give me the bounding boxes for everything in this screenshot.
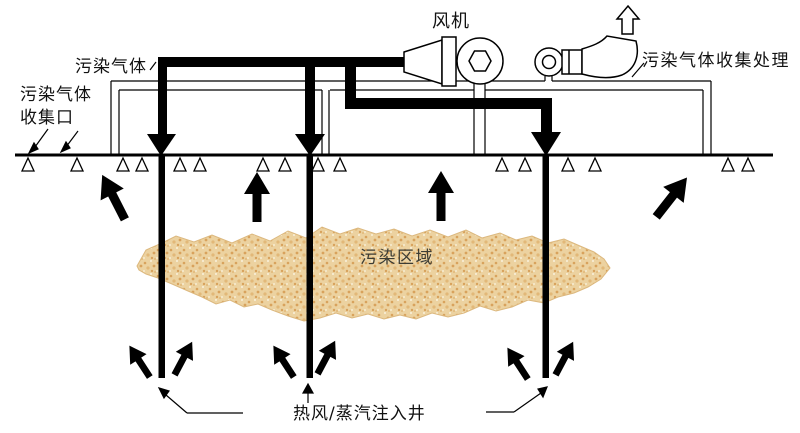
collection-port-triangle xyxy=(496,158,508,171)
fan-label: 风机 xyxy=(432,10,470,34)
injection-well-2-arrowhead xyxy=(295,134,325,156)
collection-port-triangle xyxy=(71,158,83,171)
steam-arrow-icon xyxy=(121,340,158,382)
injection-well-3-casing xyxy=(543,156,550,378)
injection-well-1-casing xyxy=(159,156,166,378)
injection-well-1-arrowhead xyxy=(147,134,176,156)
collection-port-triangle xyxy=(136,158,148,171)
steam-arrow-icon xyxy=(166,337,201,379)
contaminated-soil-blob xyxy=(137,227,610,321)
process-diagram: 风机 污染气体收集处理 污染气体 污染气体 收集口 污染区域 热风/蒸汽注入井 xyxy=(0,0,800,433)
collection-port-triangle xyxy=(174,158,186,171)
injection-well-3-pipe xyxy=(541,98,552,132)
collection-port-triangle xyxy=(589,158,601,171)
contaminated-area-label: 污染区域 xyxy=(360,247,434,270)
injection-well-label: 热风/蒸汽注入井 xyxy=(293,403,426,426)
gas-collection-port-label: 污染气体 收集口 xyxy=(20,84,92,130)
gas-flow-up-arrows xyxy=(91,169,698,225)
collection-port-triangle xyxy=(562,158,574,171)
collection-duct xyxy=(111,76,711,155)
steam-outflow-arrows xyxy=(121,336,582,384)
collection-port-triangle xyxy=(22,158,34,171)
gas-collection-port-label-line2: 收集口 xyxy=(20,107,92,130)
gas-collection-treatment-label: 污染气体收集处理 xyxy=(642,50,790,73)
hot-air-supply-pipes xyxy=(147,57,561,378)
injection-well-2-casing xyxy=(307,156,314,378)
up-arrow-icon xyxy=(244,172,270,222)
blower-icon xyxy=(404,37,503,86)
exhaust-treatment-icon xyxy=(535,6,639,78)
collection-port-triangle xyxy=(312,158,324,171)
exhaust-up-arrow-icon xyxy=(617,6,639,34)
collection-port-triangle xyxy=(742,158,754,171)
steam-arrow-icon xyxy=(265,340,302,382)
up-arrow-icon xyxy=(428,171,454,221)
collection-port-triangle xyxy=(194,158,206,171)
collection-port-triangle xyxy=(722,158,734,171)
collection-port-triangle xyxy=(257,158,269,171)
steam-arrow-icon xyxy=(547,337,582,379)
collection-port-triangle xyxy=(519,158,531,171)
injection-well-2-pipe xyxy=(305,57,315,134)
injection-well-1-pipe xyxy=(158,57,167,134)
up-arrow-icon xyxy=(646,170,697,225)
steam-arrow-icon xyxy=(499,342,536,384)
injection-well-3-arrowhead xyxy=(531,132,561,156)
collection-port-triangle xyxy=(117,158,129,171)
collection-port-triangles xyxy=(22,158,754,171)
polluted-gas-label: 污染气体 xyxy=(75,56,147,79)
collection-port-triangle xyxy=(279,158,291,171)
collection-port-triangle xyxy=(334,158,346,171)
steam-arrow-icon xyxy=(309,336,344,378)
up-arrow-icon xyxy=(91,169,137,225)
gas-collection-port-label-line1: 污染气体 xyxy=(20,84,92,107)
